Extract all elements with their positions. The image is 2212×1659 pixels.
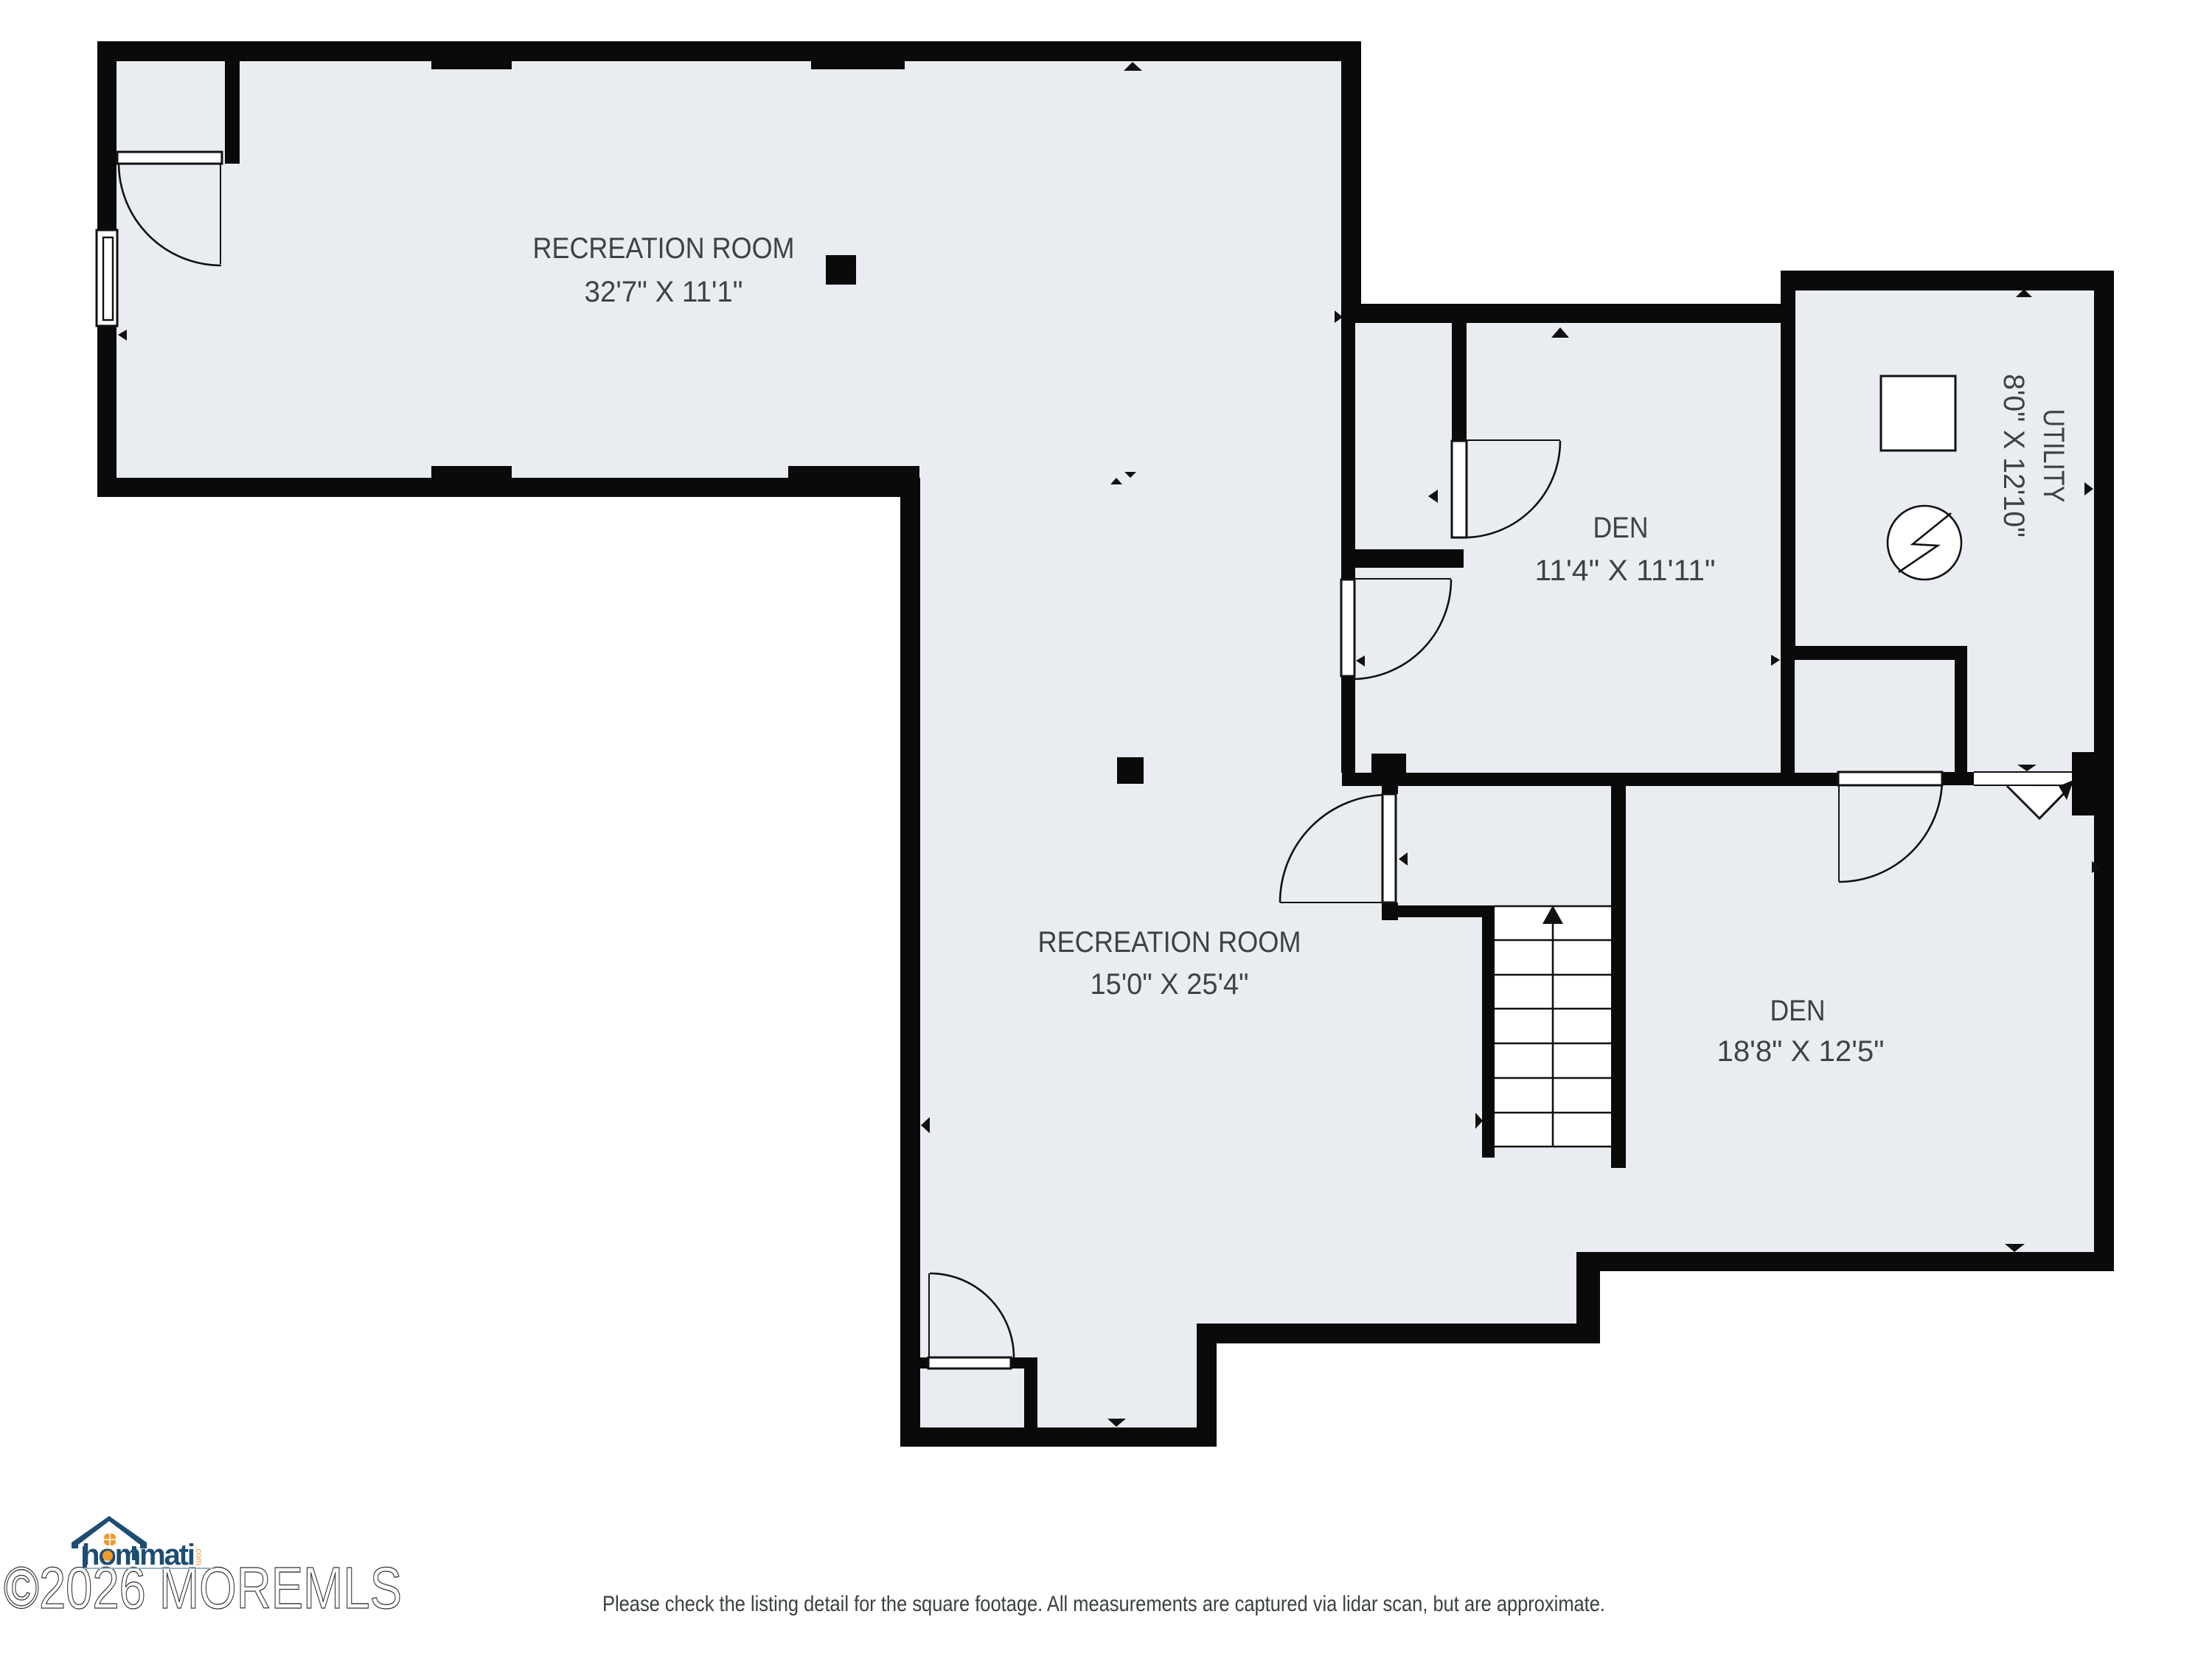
svg-text:18'8" X 12'5": 18'8" X 12'5" bbox=[1717, 1035, 1885, 1068]
svg-text:11'4" X 11'11": 11'4" X 11'11" bbox=[1535, 554, 1716, 587]
svg-text:32'7" X 11'1": 32'7" X 11'1" bbox=[585, 276, 743, 308]
svg-text:DEN: DEN bbox=[1593, 512, 1649, 544]
svg-text:hommati: hommati bbox=[82, 1539, 195, 1571]
svg-text:15'0" X 25'4": 15'0" X 25'4" bbox=[1091, 968, 1249, 1001]
svg-text:8'0" X 12'10": 8'0" X 12'10" bbox=[1997, 374, 2030, 538]
svg-text:UTILITY: UTILITY bbox=[2037, 409, 2070, 503]
svg-text:DEN: DEN bbox=[1770, 995, 1826, 1027]
svg-text:.com: .com bbox=[194, 1546, 204, 1565]
svg-text:RECREATION ROOM: RECREATION ROOM bbox=[533, 232, 795, 265]
svg-text:RECREATION ROOM: RECREATION ROOM bbox=[1038, 926, 1301, 959]
svg-text:Please check the listing detai: Please check the listing detail for the … bbox=[602, 1592, 1605, 1616]
